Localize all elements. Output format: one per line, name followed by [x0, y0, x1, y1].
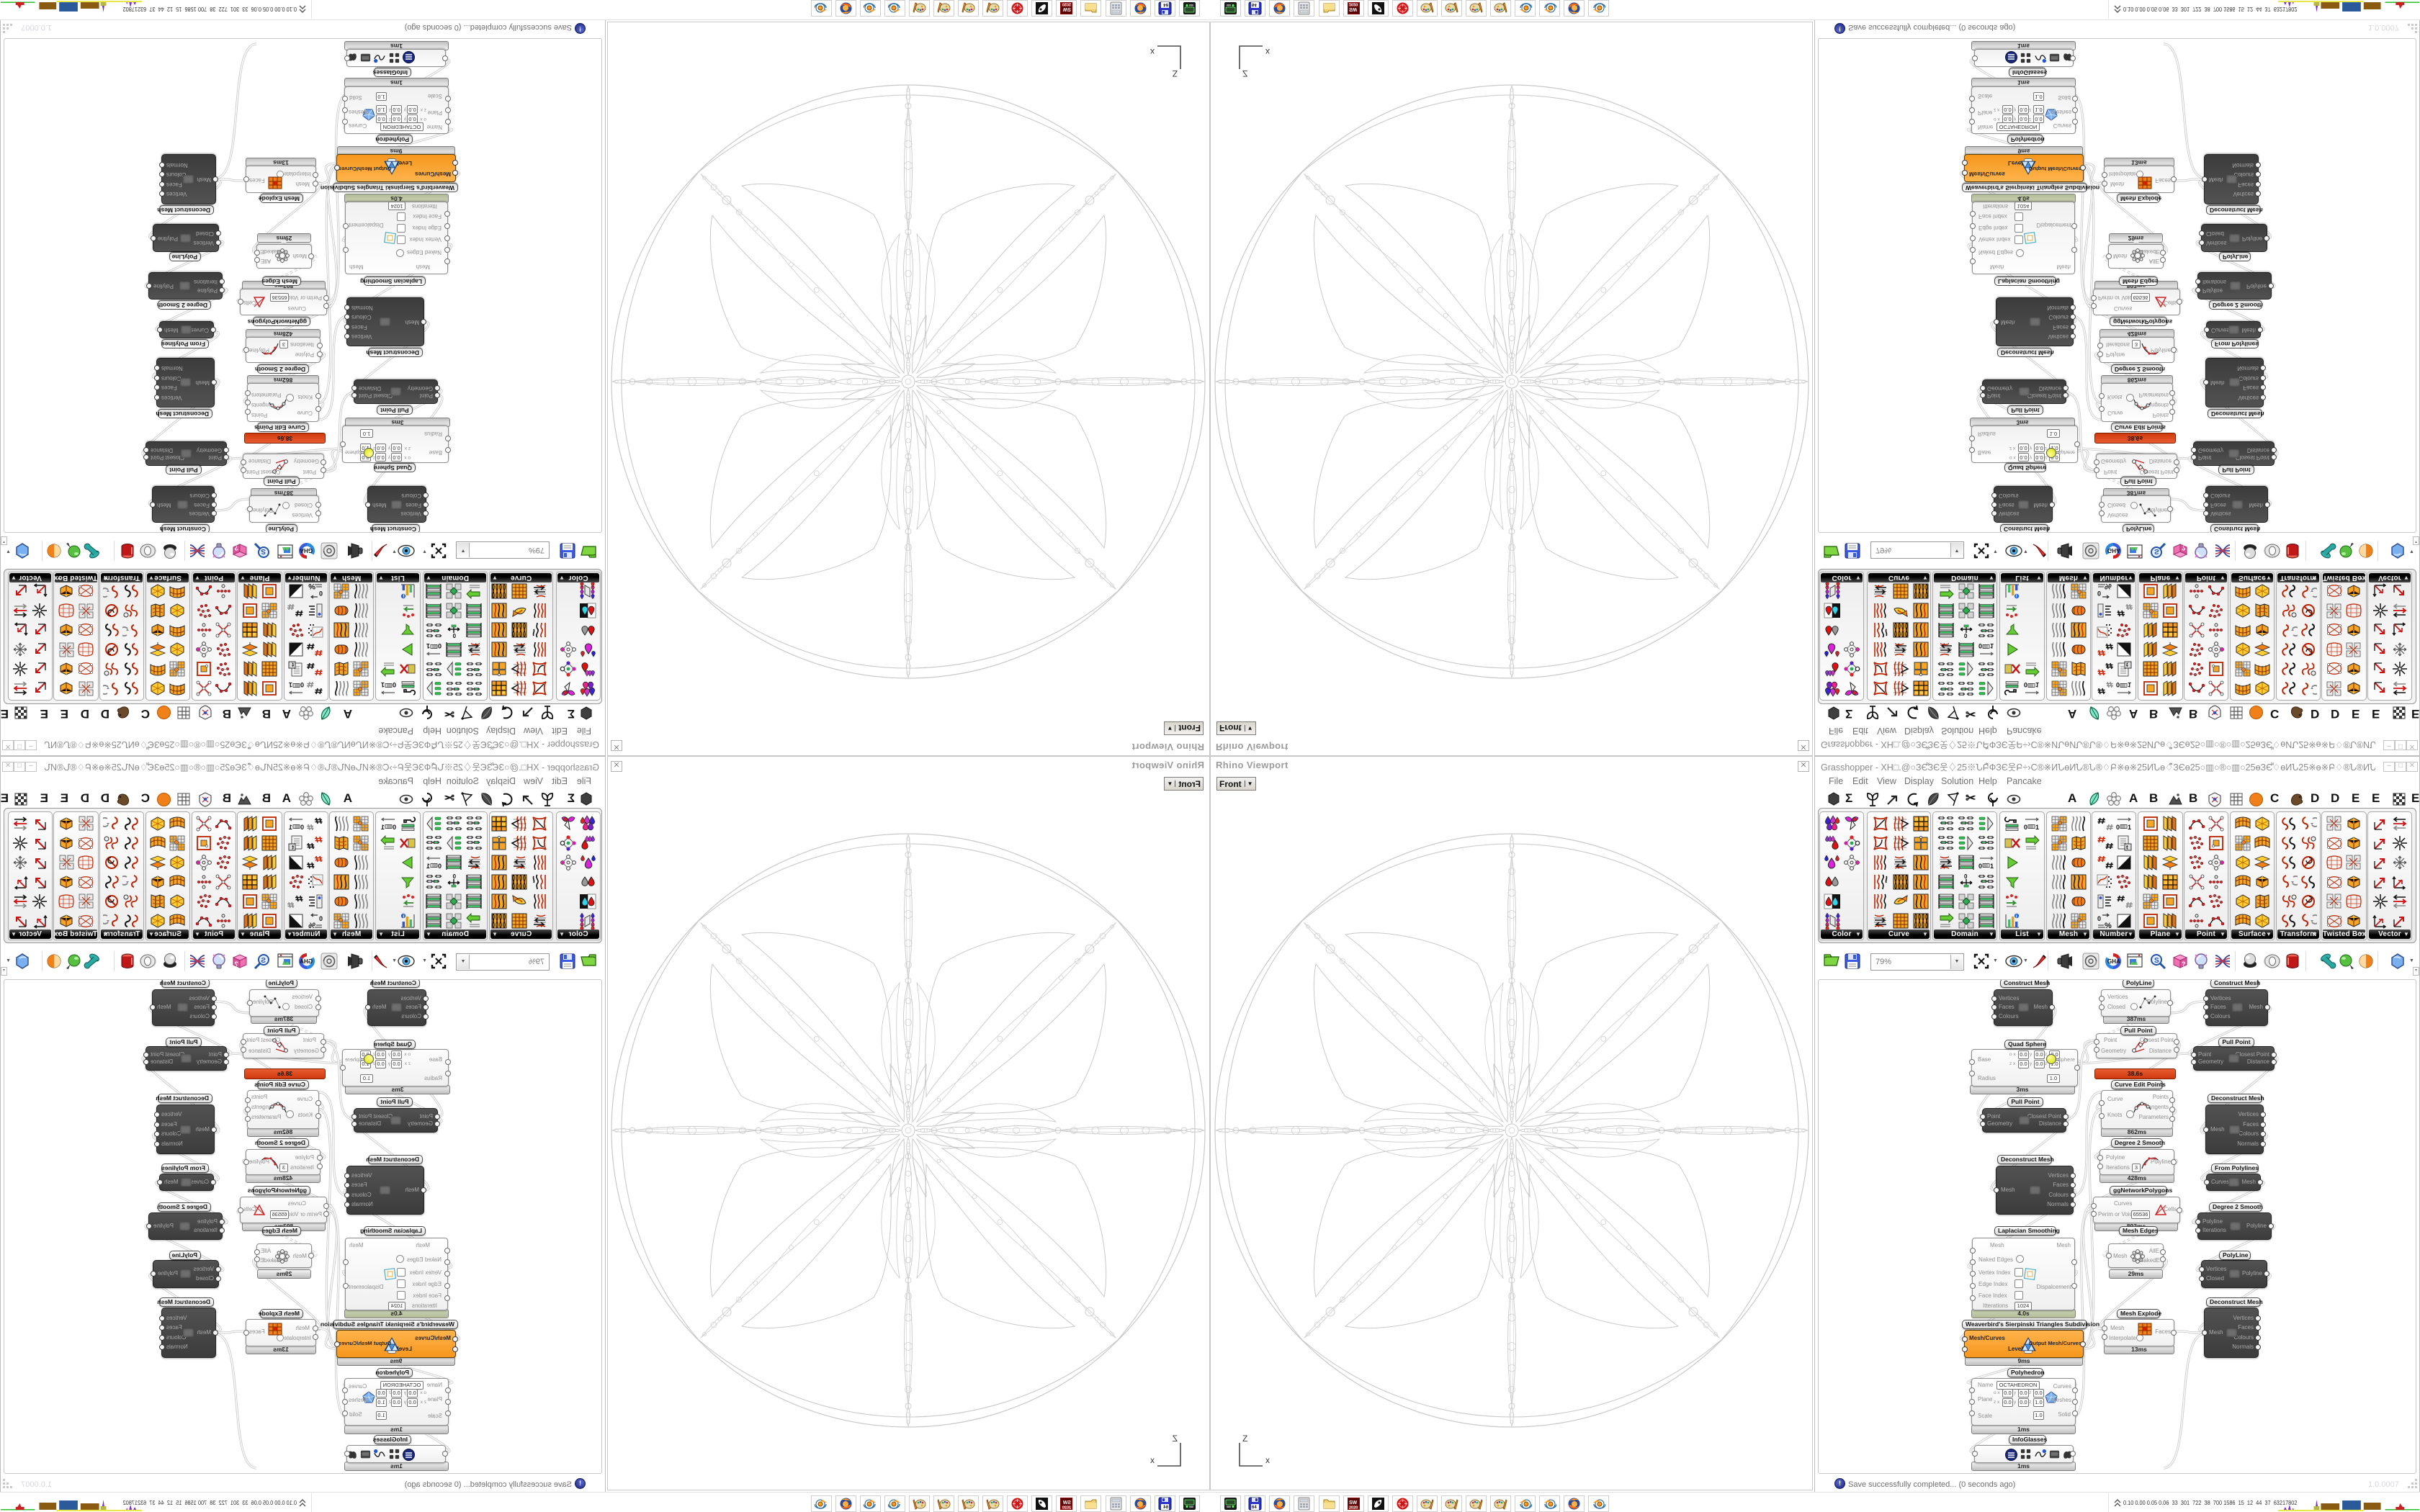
svg-text:SW: SW [1349, 6, 1358, 12]
svg-text:S: S [2154, 957, 2159, 965]
svg-text:S: S [2154, 547, 2159, 555]
svg-text:?: ? [235, 544, 239, 552]
svg-text:GHA: GHA [2107, 958, 2120, 965]
svg-text:GHA: GHA [300, 958, 313, 965]
svg-text:64: 64 [1163, 1506, 1168, 1510]
svg-text:2020: 2020 [1062, 2, 1071, 6]
svg-text:2020: 2020 [1349, 1506, 1358, 1511]
svg-text:64: 64 [1252, 1506, 1257, 1510]
svg-text:Z: Z [1173, 68, 1178, 78]
svg-text:GHA: GHA [300, 547, 313, 554]
svg-text:?: ? [2182, 544, 2186, 552]
svg-text:2020: 2020 [1062, 1506, 1071, 1511]
svg-text:x: x [1265, 1455, 1270, 1465]
svg-text:?: ? [2182, 960, 2186, 968]
svg-text:SW: SW [1349, 1500, 1358, 1506]
svg-text:x: x [1265, 47, 1270, 57]
svg-text:Z: Z [1173, 1434, 1178, 1444]
svg-text:64: 64 [1163, 2, 1168, 6]
svg-text:Z: Z [1242, 68, 1247, 78]
svg-text:64: 64 [1252, 2, 1257, 6]
svg-text:SW: SW [1062, 1500, 1071, 1506]
svg-text:S: S [261, 547, 266, 555]
svg-text:GHA: GHA [2107, 547, 2120, 554]
svg-text:2020: 2020 [1349, 2, 1358, 6]
svg-text:Z: Z [1242, 1434, 1247, 1444]
svg-text:?: ? [235, 960, 239, 968]
svg-text:S: S [261, 957, 266, 965]
svg-text:x: x [1150, 47, 1155, 57]
svg-text:x: x [1150, 1455, 1155, 1465]
svg-text:SW: SW [1062, 6, 1071, 12]
